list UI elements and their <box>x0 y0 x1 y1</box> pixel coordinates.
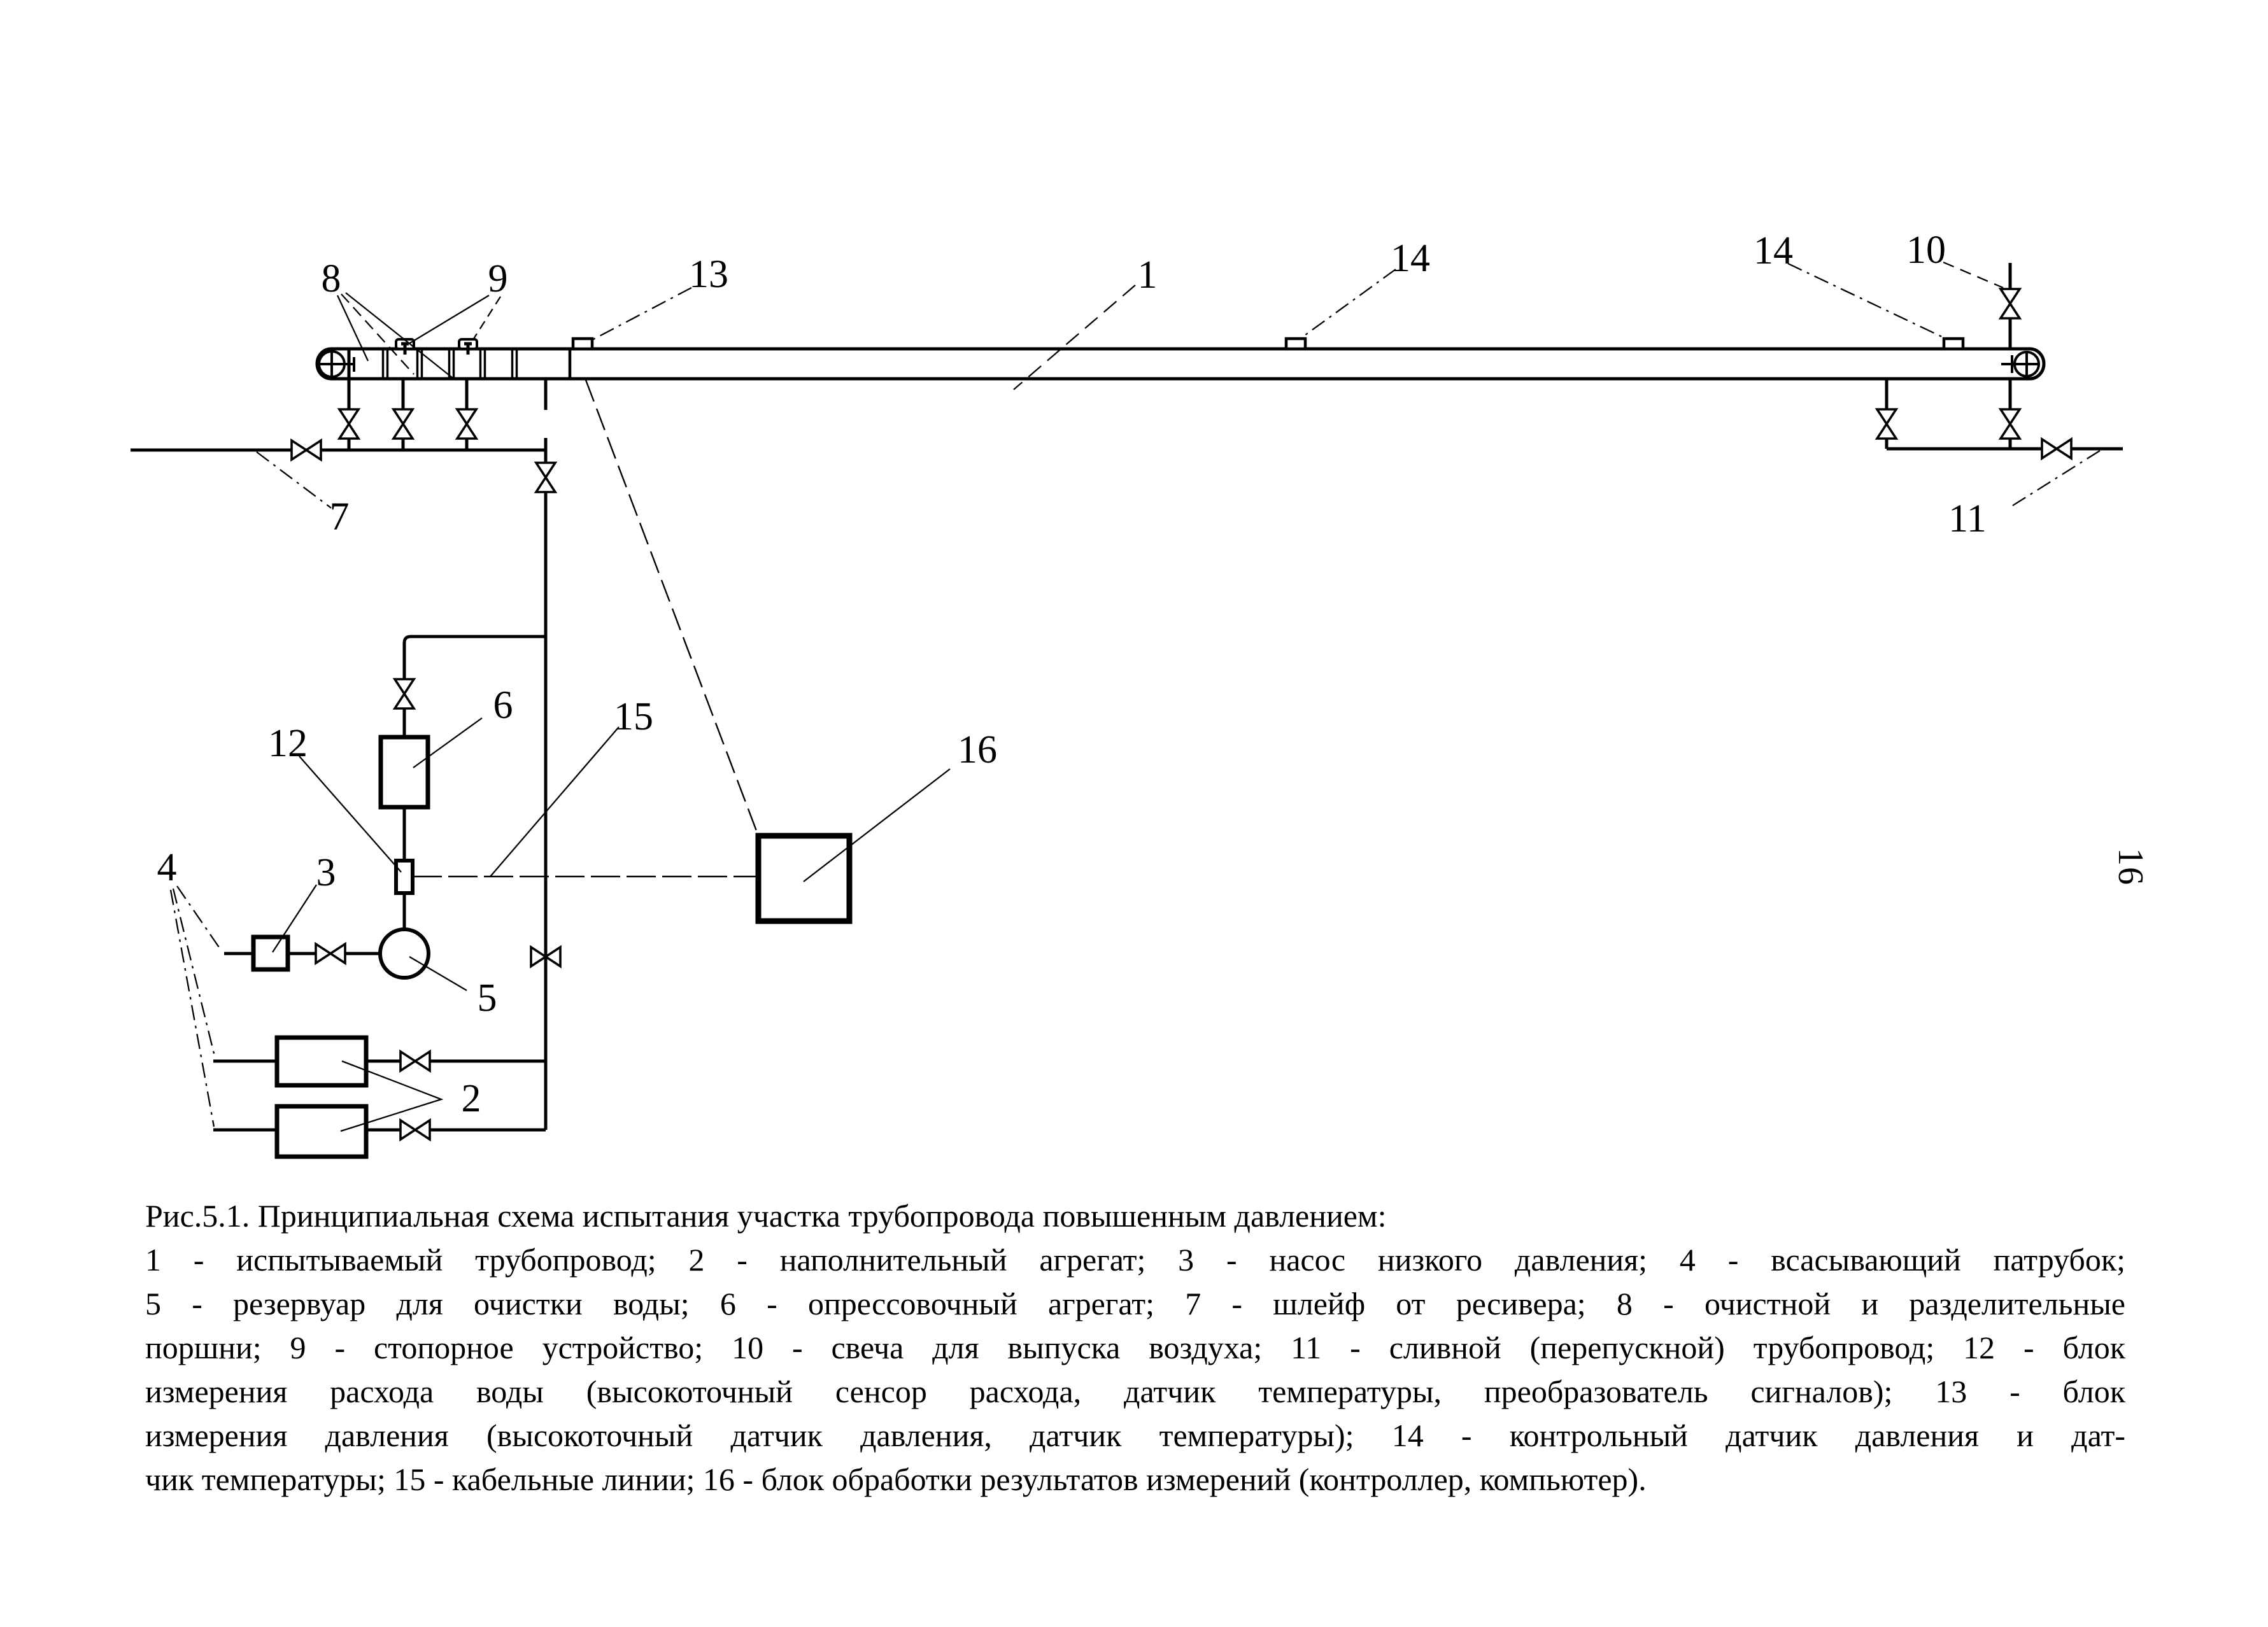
callout-6: 6 <box>493 684 513 727</box>
press-branch-valve <box>395 679 414 708</box>
cable-13-to-16 <box>586 380 758 836</box>
callout-4: 4 <box>157 846 177 889</box>
main-line-valve-upper <box>536 463 555 492</box>
callout-10: 10 <box>1906 229 1946 272</box>
pipe-right-cap-cross <box>2001 352 2039 376</box>
leader-15 <box>490 727 619 877</box>
pressure-block-13 <box>573 339 592 349</box>
right-drain-valve-1 <box>1877 409 1896 439</box>
document-page: 8 9 13 1 14 14 10 7 11 12 6 15 16 3 4 5 … <box>0 0 2268 1627</box>
callout-11: 11 <box>1948 497 1987 540</box>
callout-7: 7 <box>330 495 350 539</box>
callout-2: 2 <box>462 1077 481 1120</box>
callout-15: 15 <box>614 695 653 738</box>
receiver-line-valve <box>292 440 321 460</box>
leader-4c <box>171 890 214 1127</box>
callout-3: 3 <box>316 851 336 894</box>
lower-tank-valve <box>400 1120 430 1139</box>
leader-13 <box>592 288 691 340</box>
drain-valve-2 <box>393 409 413 439</box>
leader-8b <box>341 294 414 374</box>
callout-8: 8 <box>322 257 341 300</box>
flow-block-12 <box>396 861 413 893</box>
leader-4a <box>177 886 222 951</box>
caption-line: Рис.5.1. Принципиальная схема испытания … <box>145 1194 2125 1238</box>
piston-chamber-dividers <box>383 349 571 378</box>
drain-valve-3 <box>457 409 476 439</box>
leader-8c <box>346 293 452 377</box>
caption-line: чик температуры; 15 - кабельные линии; 1… <box>145 1458 2125 1502</box>
leader-8a <box>337 295 368 361</box>
water-tank-5 <box>380 929 429 978</box>
pipeline-1 <box>317 349 2044 379</box>
control-sensor-14-mid <box>1286 339 1305 349</box>
leader-4b <box>173 889 215 1059</box>
figure-caption: Рис.5.1. Принципиальная схема испытания … <box>145 1194 2125 1502</box>
drain-valve-1 <box>339 409 358 439</box>
upper-tank-valve <box>400 1052 430 1071</box>
leader-10 <box>1943 262 2003 288</box>
caption-line: измерения давления (высокоточный датчик … <box>145 1414 2125 1458</box>
processing-unit-16 <box>758 836 849 921</box>
right-drain-valve-2 <box>2001 409 2020 439</box>
branch-line <box>404 637 546 737</box>
caption-line: 1 - испытываемый трубопровод; 2 - наполн… <box>145 1238 2125 1282</box>
caption-line: поршни; 9 - стопорное устройство; 10 - с… <box>145 1326 2125 1370</box>
callout-9: 9 <box>488 257 508 300</box>
callout-labels: 8 9 13 1 14 14 10 7 11 12 6 15 16 3 4 5 … <box>157 229 1987 1120</box>
press-unit-6 <box>381 737 428 807</box>
callout-12: 12 <box>268 722 308 765</box>
callout-1: 1 <box>1138 253 1158 297</box>
caption-line: измерения расхода воды (высокоточный сен… <box>145 1370 2125 1414</box>
low-pressure-pump-3 <box>253 937 288 969</box>
caption-line: 5 - резервуар для очистки воды; 6 - опре… <box>145 1282 2125 1326</box>
callout-14-mid: 14 <box>1391 237 1430 280</box>
filling-unit-tank-upper <box>277 1038 366 1085</box>
leader-9a <box>409 295 489 344</box>
cable-lines-15 <box>413 380 758 877</box>
leader-14-mid <box>1300 269 1396 339</box>
leader-16 <box>804 769 950 882</box>
filling-unit-tank-lower <box>277 1106 366 1157</box>
callout-13: 13 <box>689 253 728 296</box>
stopper-clamp-2 <box>459 339 477 355</box>
leader-3 <box>273 885 316 952</box>
leader-11 <box>2009 451 2100 508</box>
callout-14-right: 14 <box>1754 229 1793 272</box>
leader-14-right <box>1788 264 1946 339</box>
leader-1 <box>1014 285 1135 390</box>
callout-leaders <box>171 262 2100 1131</box>
page-number: 16 <box>2110 835 2151 899</box>
leader-7 <box>257 452 331 508</box>
callout-5: 5 <box>478 976 497 1020</box>
suction-valve <box>316 944 345 963</box>
pipe-left-cap-cross <box>319 349 354 379</box>
callout-16: 16 <box>958 728 997 771</box>
control-sensor-14-right <box>1944 339 1963 349</box>
drain-outlet-valve <box>2042 439 2071 458</box>
vent-valve <box>2001 289 2020 318</box>
